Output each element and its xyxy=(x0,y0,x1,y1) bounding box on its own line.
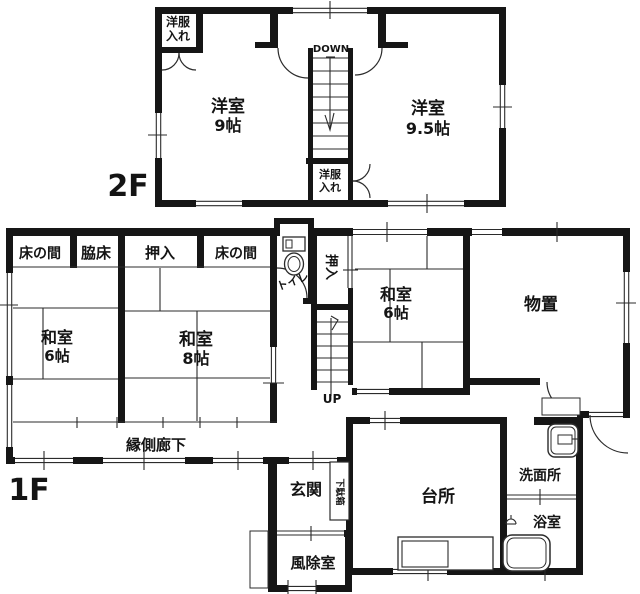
room-label-genkan: 玄関 xyxy=(290,480,322,499)
floor-label-1f: 1F xyxy=(8,473,49,508)
room-label-getabako: 下駄箱 xyxy=(334,478,346,505)
door-arc xyxy=(353,181,370,198)
stairs-down-label: DOWN xyxy=(313,44,349,55)
stairs-up-label: UP xyxy=(323,392,342,406)
room-label-washitsu6-west: 和室 xyxy=(41,328,73,347)
rear-step xyxy=(542,398,580,415)
room-label-wakidoko: 脇床 xyxy=(81,244,112,262)
room-label-west-room-size: 9帖 xyxy=(214,116,241,135)
room-label-closet-s: 洋服 xyxy=(319,167,342,181)
room-label-closet-nw: 入れ xyxy=(166,29,190,43)
bathtub-icon xyxy=(503,535,550,571)
toilet-icon xyxy=(283,237,305,275)
room-label-fujo: 風除室 xyxy=(290,554,335,572)
door-arc xyxy=(179,53,196,70)
room-label-washitsu8: 和室 xyxy=(179,329,213,350)
door-arc xyxy=(355,48,382,75)
washbasin-icon xyxy=(548,424,579,457)
room-label-monooki: 物置 xyxy=(524,294,558,315)
f1-tatami-lines xyxy=(13,236,463,428)
door-arc xyxy=(353,164,370,181)
kitchen-sink xyxy=(402,541,448,567)
room-label-tokonoma-west: 床の間 xyxy=(19,245,61,262)
floor-label-2f: 2F xyxy=(107,169,148,204)
room-label-west-room: 洋室 xyxy=(211,96,245,117)
door-arc xyxy=(590,415,628,453)
kitchen-counter xyxy=(398,537,493,570)
room-label-closet-s: 入れ xyxy=(319,181,341,194)
room-label-washitsu8-size: 8帖 xyxy=(182,349,209,368)
shower-faucet-icon xyxy=(506,515,516,524)
room-label-oshiire-north: 押入 xyxy=(145,244,175,262)
room-label-tokonoma-east: 床の間 xyxy=(215,245,257,262)
room-label-oshiire-stair: 押入 xyxy=(323,254,339,280)
entrance-step xyxy=(250,531,268,588)
room-label-daidokoro: 台所 xyxy=(421,486,455,507)
f1-labels: 床の間 脇床 押入 床の間 和室 6帖 和室 8帖 トイレ 押入 和室 6帖 物… xyxy=(8,244,561,572)
room-label-washitsu6-east-size: 6帖 xyxy=(383,304,408,322)
room-label-washitsu6-west-size: 6帖 xyxy=(44,347,69,365)
door-arc xyxy=(162,53,179,70)
room-label-closet-nw: 洋服 xyxy=(166,14,191,29)
room-label-engawa: 縁側廊下 xyxy=(126,436,186,454)
room-label-east-room: 洋室 xyxy=(411,98,445,119)
f1-stairs xyxy=(317,316,348,396)
door-arc xyxy=(278,48,308,78)
stair-arrow-head xyxy=(331,316,338,330)
f2-stairs xyxy=(313,57,348,149)
floor-plan: 洋服 入れ 洋室 9帖 洋室 9.5帖 DOWN 洋服 入れ 2F xyxy=(0,0,640,594)
room-label-washitsu6-east: 和室 xyxy=(380,285,412,304)
room-label-senmenjo: 洗面所 xyxy=(519,467,561,484)
room-label-east-room-size: 9.5帖 xyxy=(406,119,450,138)
room-label-yokushitsu: 浴室 xyxy=(533,514,561,531)
